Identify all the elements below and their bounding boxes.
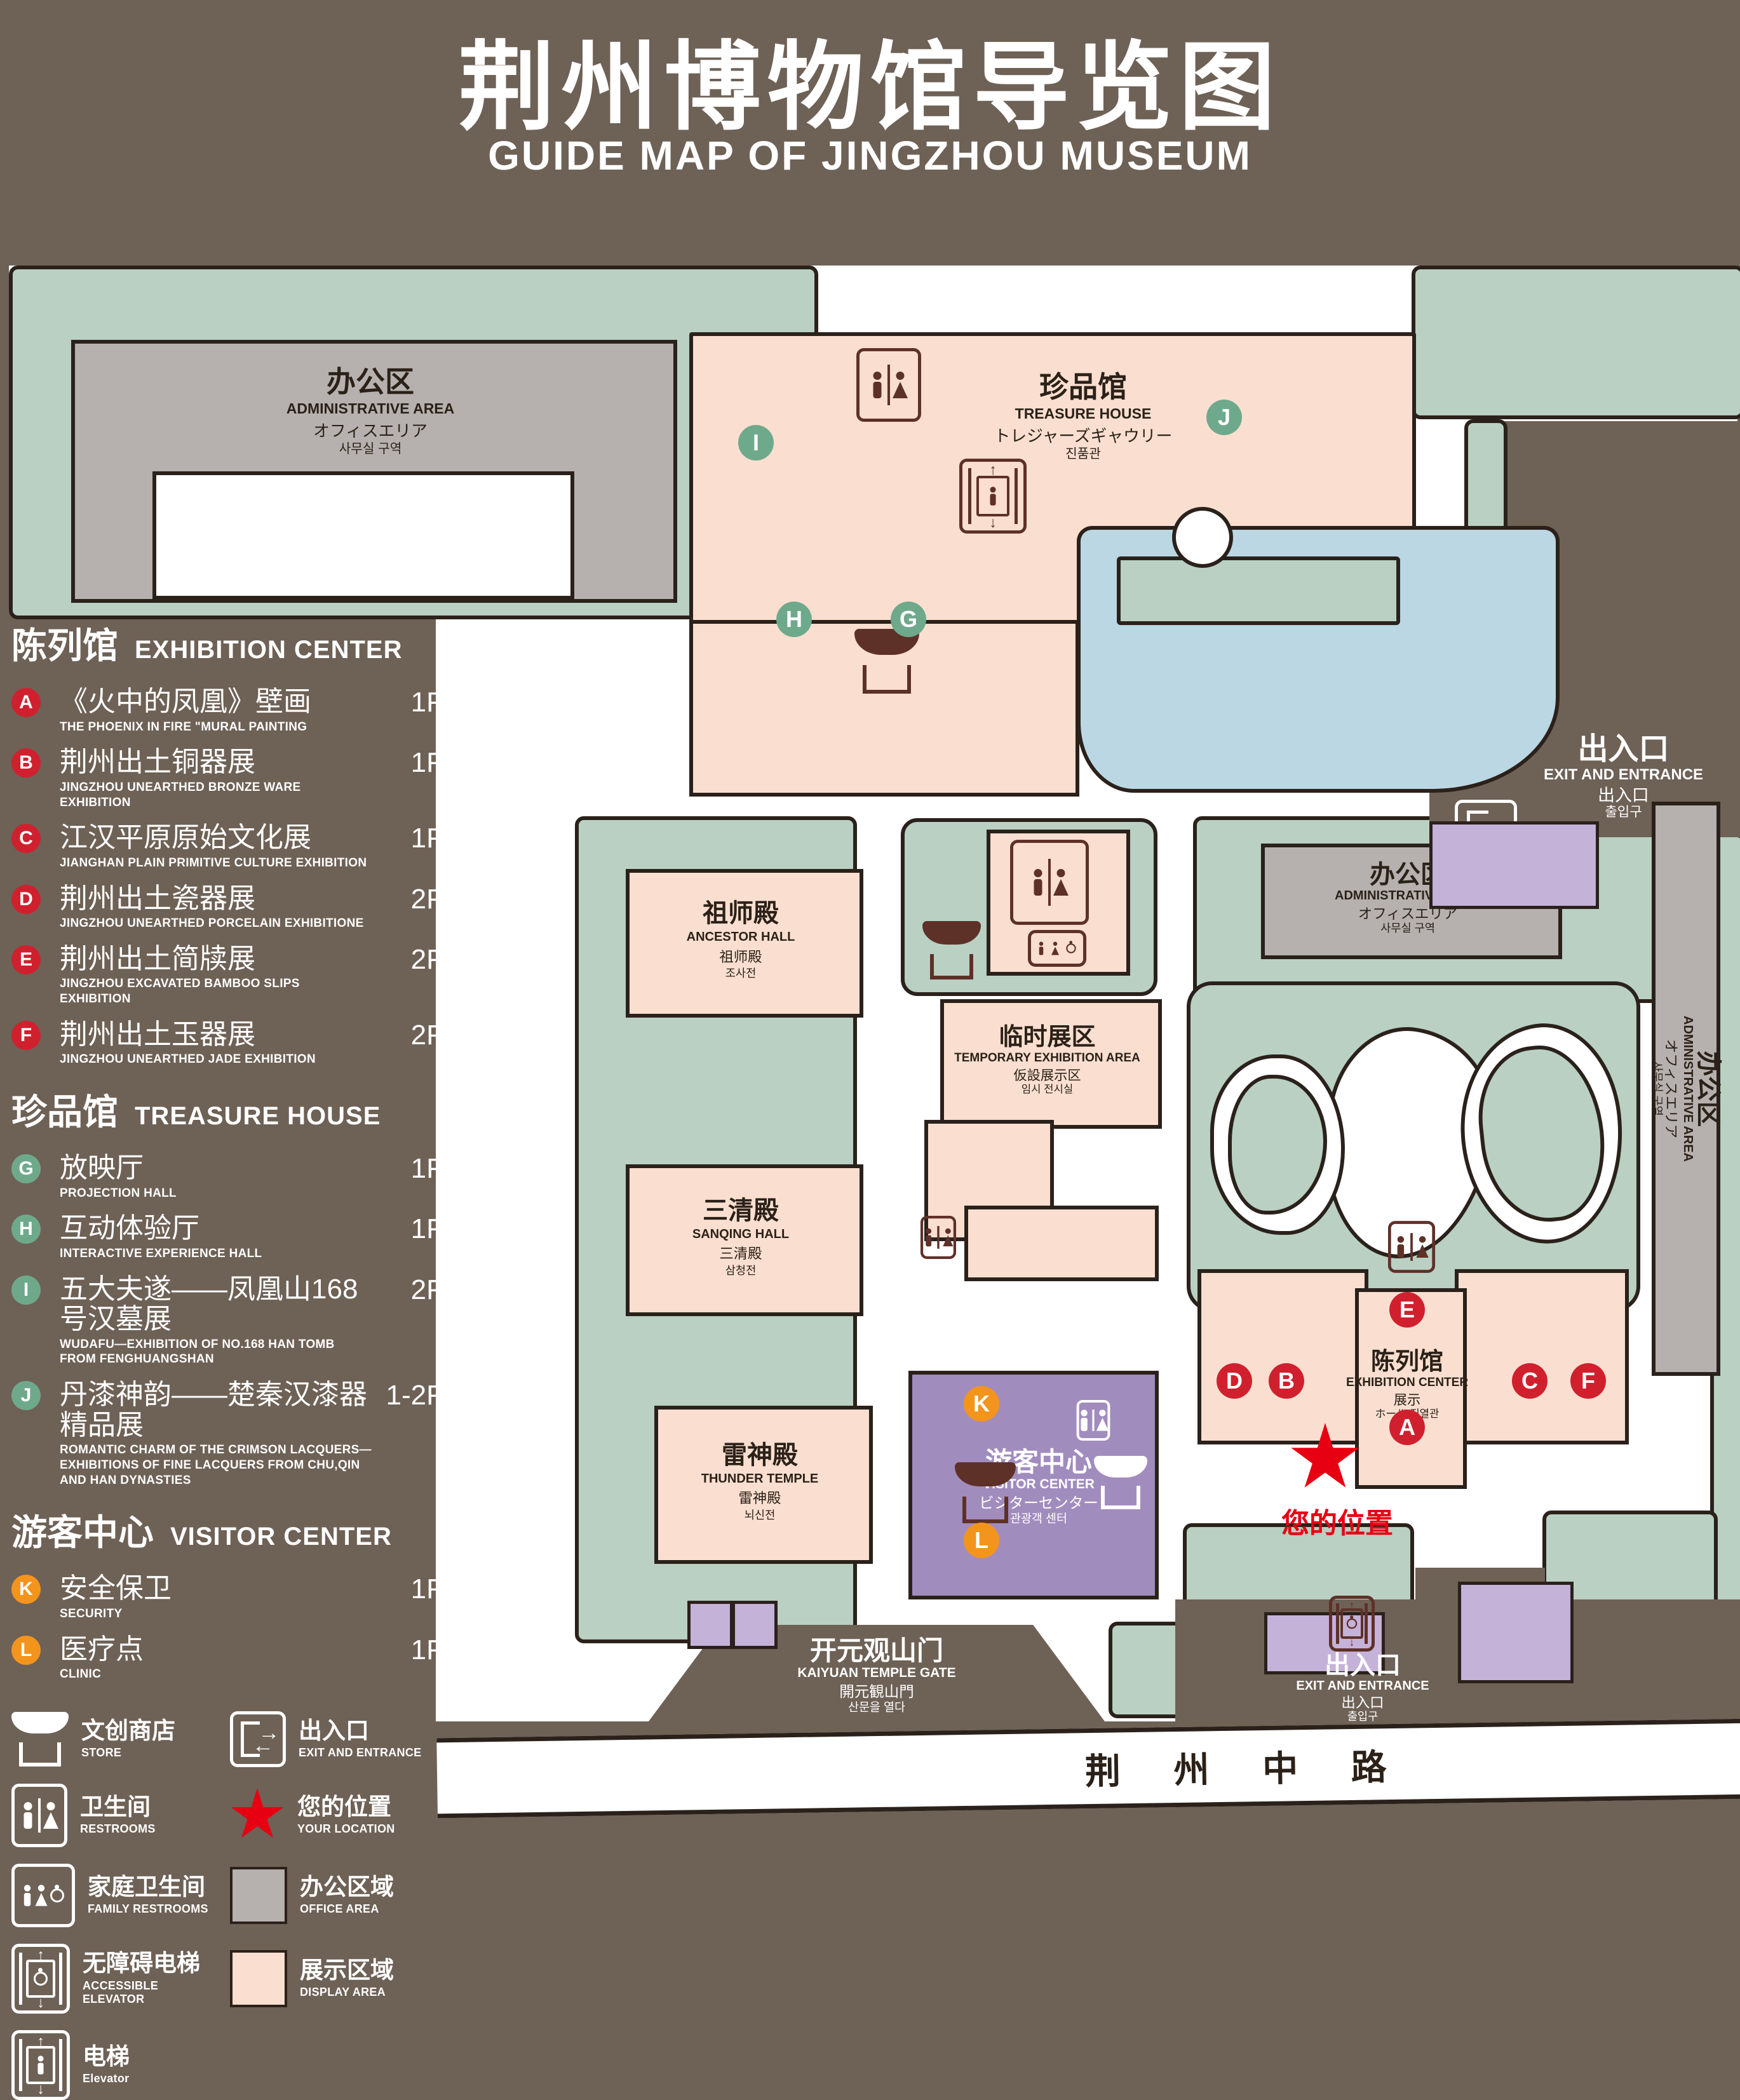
item-en: JINGZHOU UNEARTHED PORCELAIN EXHIBITIONE xyxy=(60,916,374,931)
item-floor: 2F xyxy=(382,884,443,915)
lake-arch-bridge xyxy=(1172,507,1233,568)
page-subtitle: GUIDE MAP OF JINGZHOU MUSEUM xyxy=(0,132,1740,179)
list-item-c: C 江汉平原原始文化展 JIANGHAN PLAIN PRIMITIVE CUL… xyxy=(11,823,443,870)
item-floor: 2F xyxy=(382,1274,443,1306)
section-heading-en: TREASURE HOUSE xyxy=(135,1102,381,1131)
legend-display-area: 展示区域DISPLAY AREA xyxy=(230,1944,440,2014)
gate-pillar-right xyxy=(732,1601,778,1649)
your-location-label: 您的位置 xyxy=(1239,1500,1436,1541)
item-zh: 医疗点 xyxy=(60,1634,374,1665)
store-icon xyxy=(1094,1456,1147,1509)
legend-family-restrooms: 家庭卫生间FAMILY RESTROOMS xyxy=(11,1864,221,1927)
location-star-icon xyxy=(230,1788,285,1843)
store-icon xyxy=(922,921,981,979)
exit-right-building xyxy=(1429,821,1599,909)
building-temporary-slab xyxy=(964,1206,1159,1281)
marker-f: F xyxy=(1570,1363,1606,1399)
building-exhibition-left-wing xyxy=(1197,1269,1368,1444)
item-zh: 荆州出土铜器展 xyxy=(60,747,374,777)
item-zh: 安全保卫 xyxy=(60,1573,374,1604)
item-zh: 荆州出土瓷器展 xyxy=(60,884,374,914)
list-item-a: A 《火中的凤凰》壁画 THE PHOENIX IN FIRE "MURAL P… xyxy=(11,687,443,734)
badge-a: A xyxy=(11,688,41,717)
badge-k: K xyxy=(11,1575,41,1604)
green-area-topright xyxy=(1412,266,1740,419)
section-exhibition-center: 陈列馆 EXHIBITION CENTER xyxy=(11,617,443,669)
restroom-icon xyxy=(11,1784,67,1847)
store-icon xyxy=(955,1462,1016,1523)
list-item-b: B 荆州出土铜器展 JINGZHOU UNEARTHED BRONZE WARE… xyxy=(11,747,443,810)
building-admin-side: 办公区ADMINISTRATIVE AREA オフィスエリア사무실 구역 xyxy=(1652,802,1720,1376)
legend-store: 文创商店STORE xyxy=(11,1711,221,1767)
item-zh: 丹漆神韵——楚秦汉漆器精品展 xyxy=(60,1380,374,1440)
item-en: PROJECTION HALL xyxy=(60,1186,374,1201)
marker-d: D xyxy=(1217,1363,1252,1399)
office-area-swatch xyxy=(230,1867,287,1924)
badge-i: I xyxy=(11,1275,41,1305)
road-jingzhou-middle: 荆 州 中 路 xyxy=(436,1719,1740,1819)
item-en: THE PHOENIX IN FIRE "MURAL PAINTING xyxy=(60,720,374,735)
marker-b: B xyxy=(1269,1363,1304,1399)
marker-e: E xyxy=(1389,1292,1425,1328)
badge-b: B xyxy=(11,748,41,777)
list-item-h: H 互动体验厅 INTERACTIVE EXPERIENCE HALL 1F xyxy=(11,1213,443,1261)
item-floor: 1F xyxy=(382,1153,443,1185)
marker-k: K xyxy=(964,1386,999,1422)
item-floor: 2F xyxy=(382,944,443,976)
item-floor: 2F xyxy=(382,1020,443,1051)
badge-c: C xyxy=(11,824,41,853)
badge-l: L xyxy=(11,1636,41,1665)
legend-restrooms: 卫生间RESTROOMS xyxy=(11,1784,221,1847)
section-heading-zh: 珍品馆 xyxy=(11,1084,118,1135)
marker-g: G xyxy=(891,602,926,637)
item-floor: 1F xyxy=(382,1213,443,1245)
item-en: SECURITY xyxy=(60,1606,374,1622)
item-en: WUDAFU—EXHIBITION OF NO.168 HAN TOMB FRO… xyxy=(60,1337,374,1368)
section-heading-en: EXHIBITION CENTER xyxy=(135,636,402,664)
item-en: INTERACTIVE EXPERIENCE HALL xyxy=(60,1246,374,1262)
badge-h: H xyxy=(11,1215,41,1244)
item-floor: 1F xyxy=(382,823,443,854)
marker-l: L xyxy=(964,1523,999,1558)
item-zh: 《火中的凤凰》壁画 xyxy=(60,687,374,717)
elevator-icon: ↑↓ xyxy=(959,459,1027,534)
section-visitor-center: 游客中心 VISITOR CENTER xyxy=(11,1504,443,1556)
list-item-k: K 安全保卫 SECURITY 1F xyxy=(11,1573,443,1621)
item-en: JIANGHAN PLAIN PRIMITIVE CULTURE EXHIBIT… xyxy=(60,856,374,871)
road-label: 荆 州 中 路 xyxy=(1084,1738,1408,1794)
restroom-icon xyxy=(1388,1221,1435,1273)
restroom-icon xyxy=(1077,1400,1110,1441)
restroom-icon xyxy=(1010,840,1089,925)
accessible-elevator-icon: ↑↓ xyxy=(1329,1596,1375,1652)
legend-exit: →← 出入口EXIT AND ENTRANCE xyxy=(230,1711,440,1767)
family-restroom-icon xyxy=(1028,930,1086,967)
item-en: JINGZHOU EXCAVATED BAMBOO SLIPS EXHIBITI… xyxy=(60,976,374,1007)
marker-c: C xyxy=(1512,1363,1548,1399)
badge-d: D xyxy=(11,885,41,914)
list-item-i: I 五大夫遂——凤凰山168号汉墓展 WUDAFU—EXHIBITION OF … xyxy=(11,1274,443,1368)
building-exhibition-right-wing xyxy=(1455,1269,1629,1444)
exit-bottom-building-right xyxy=(1458,1582,1574,1683)
display-area-swatch xyxy=(230,1950,287,2007)
item-zh: 江汉平原原始文化展 xyxy=(60,823,374,853)
item-zh: 荆州出土玉器展 xyxy=(60,1020,374,1050)
admin-side-label: 办公区ADMINISTRATIVE AREA オフィスエリア사무실 구역 xyxy=(1657,822,1715,1356)
family-restroom-icon xyxy=(11,1864,75,1927)
badge-j: J xyxy=(11,1381,41,1410)
legend-sidebar: 陈列馆 EXHIBITION CENTER A 《火中的凤凰》壁画 THE PH… xyxy=(11,617,443,2100)
exit-icon: →← xyxy=(230,1711,286,1767)
store-icon xyxy=(854,629,919,694)
item-floor: 1F xyxy=(382,1634,443,1666)
list-item-f: F 荆州出土玉器展 JINGZHOU UNEARTHED JADE EXHIBI… xyxy=(11,1020,443,1067)
item-floor: 1F xyxy=(382,747,443,779)
page-title: 荆州博物馆导览图 xyxy=(0,9,1740,149)
map-legend: 文创商店STORE →← 出入口EXIT AND ENTRANCE 卫生间RES… xyxy=(11,1711,443,2100)
store-icon xyxy=(11,1712,69,1767)
item-floor: 1-2F xyxy=(382,1380,443,1411)
item-en: ROMANTIC CHARM OF THE CRIMSON LACQUERS—E… xyxy=(60,1443,374,1488)
item-floor: 1F xyxy=(382,1573,443,1605)
item-floor: 1F xyxy=(382,687,443,718)
section-heading-zh: 陈列馆 xyxy=(11,617,118,669)
marker-a: A xyxy=(1389,1410,1425,1445)
lake-island-strip xyxy=(1117,556,1400,625)
list-item-e: E 荆州出土简牍展 JINGZHOU EXCAVATED BAMBOO SLIP… xyxy=(11,944,443,1007)
badge-g: G xyxy=(11,1154,41,1183)
marker-i: I xyxy=(738,425,774,461)
building-temporary-exhibition xyxy=(940,999,1162,1129)
legend-accessible-elevator: ↑↓ 无障碍电梯ACCESSIBLE ELEVATOR xyxy=(11,1944,221,2014)
section-heading-zh: 游客中心 xyxy=(11,1504,154,1556)
marker-j: J xyxy=(1206,400,1242,435)
item-en: CLINIC xyxy=(60,1667,374,1682)
marker-h: H xyxy=(776,602,812,637)
section-heading-en: VISITOR CENTER xyxy=(170,1523,392,1551)
building-ancestor-hall xyxy=(626,869,863,1018)
badge-f: F xyxy=(11,1021,41,1050)
legend-elevator: ↑↓ 电梯Elevator xyxy=(11,2030,221,2100)
item-zh: 互动体验厅 xyxy=(60,1213,374,1244)
badge-e: E xyxy=(11,945,41,974)
section-treasure-house: 珍品馆 TREASURE HOUSE xyxy=(11,1084,443,1135)
restroom-icon xyxy=(856,348,921,422)
list-item-l: L 医疗点 CLINIC 1F xyxy=(11,1634,443,1682)
list-item-d: D 荆州出土瓷器展 JINGZHOU UNEARTHED PORCELAIN E… xyxy=(11,884,443,931)
legend-office-area: 办公区域OFFICE AREA xyxy=(230,1864,440,1927)
list-item-j: J 丹漆神韵——楚秦汉漆器精品展 ROMANTIC CHARM OF THE C… xyxy=(11,1380,443,1488)
admin-topleft-courtyard xyxy=(152,471,574,600)
gate-pillar-left xyxy=(687,1601,733,1649)
legend-your-location: 您的位置YOUR LOCATION xyxy=(230,1784,440,1847)
accessible-elevator-icon: ↑↓ xyxy=(11,1944,70,2014)
item-en: JINGZHOU UNEARTHED BRONZE WARE EXHIBITIO… xyxy=(60,780,374,811)
building-thunder-temple xyxy=(654,1406,873,1564)
restroom-icon xyxy=(921,1216,956,1259)
elevator-icon: ↑↓ xyxy=(11,2030,70,2100)
item-en: JINGZHOU UNEARTHED JADE EXHIBITION xyxy=(60,1052,374,1067)
item-zh: 五大夫遂——凤凰山168号汉墓展 xyxy=(60,1274,374,1335)
item-zh: 荆州出土简牍展 xyxy=(60,944,374,974)
item-zh: 放映厅 xyxy=(60,1153,374,1183)
building-sanqing-hall xyxy=(626,1164,863,1316)
list-item-g: G 放映厅 PROJECTION HALL 1F xyxy=(11,1153,443,1201)
